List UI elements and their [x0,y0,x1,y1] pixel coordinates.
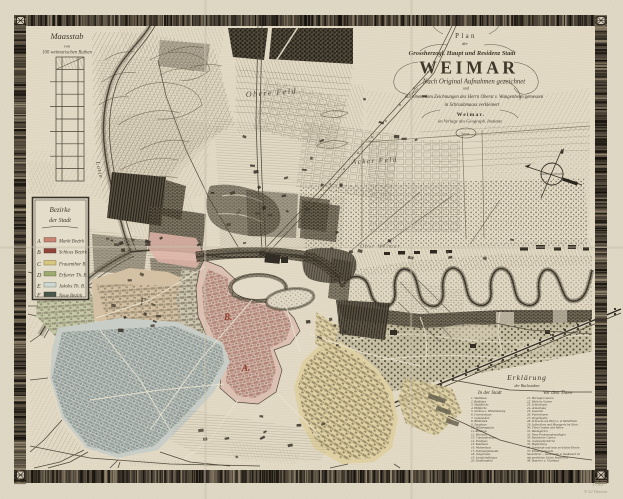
svg-text:N 52 Weimar: N 52 Weimar [583,489,608,494]
